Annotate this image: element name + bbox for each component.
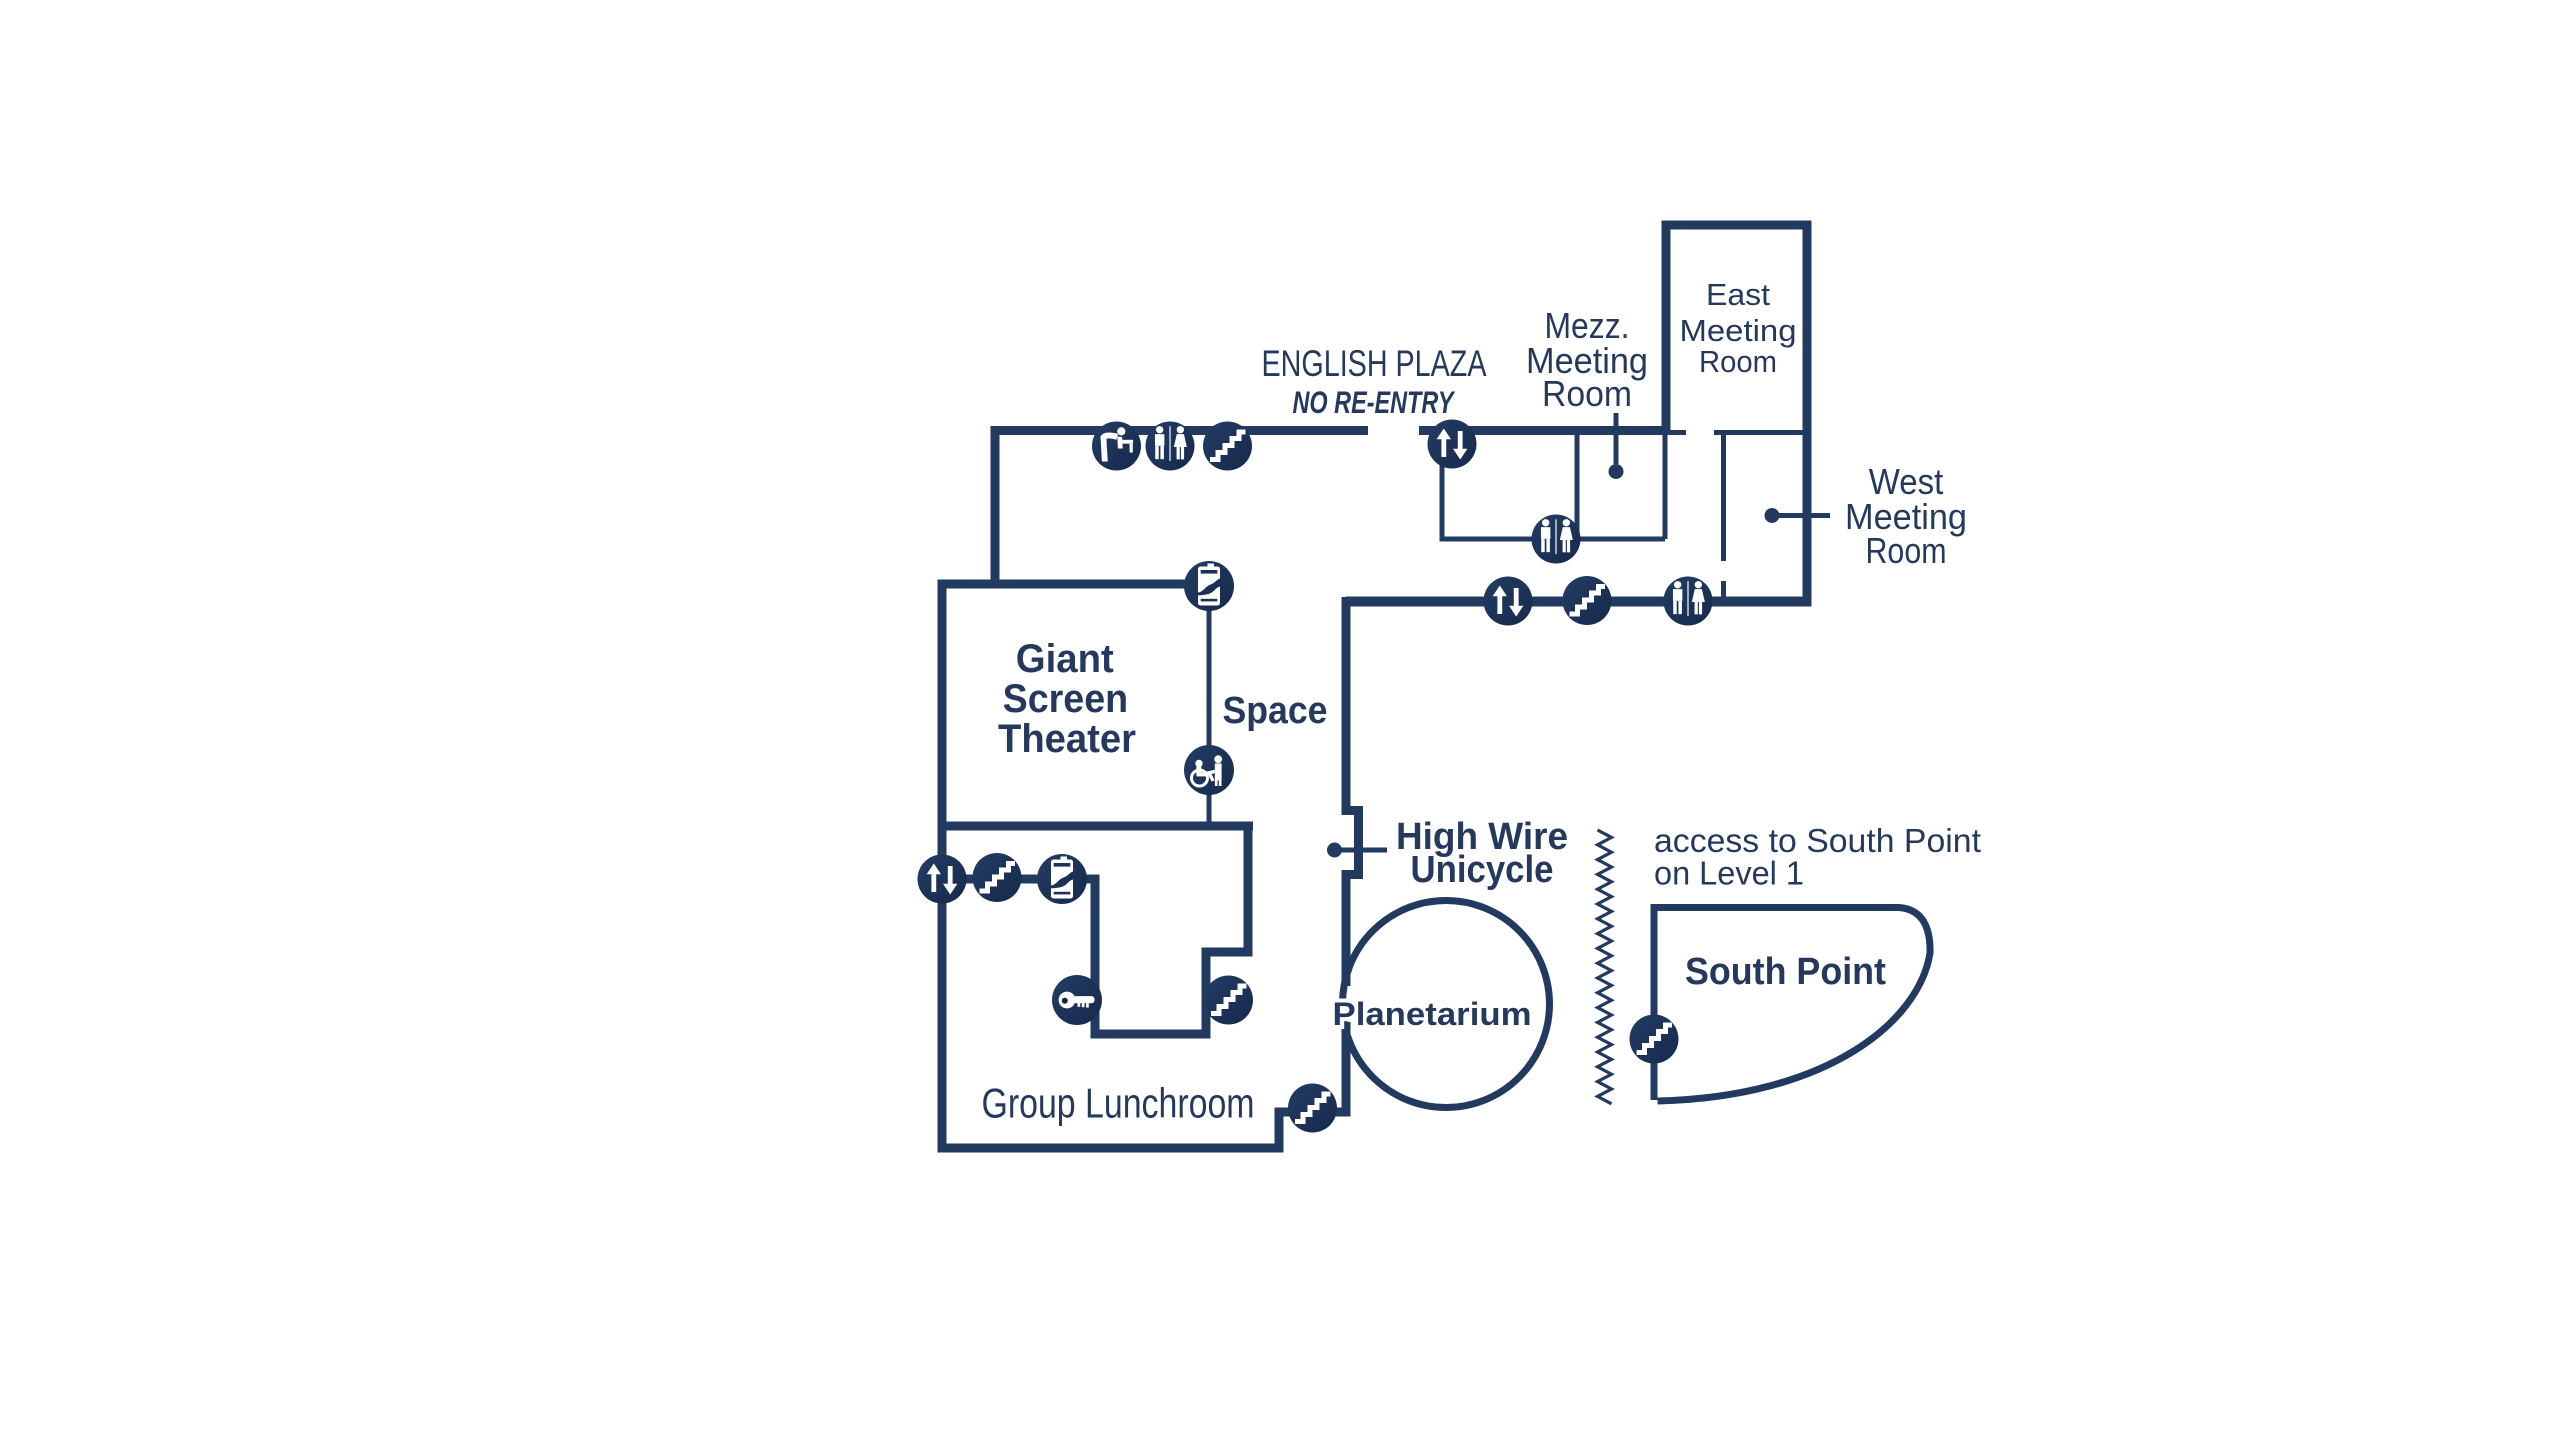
svg-text:Room: Room <box>1866 530 1947 571</box>
svg-text:ENGLISH PLAZA: ENGLISH PLAZA <box>1262 343 1487 384</box>
svg-text:Screen: Screen <box>1003 677 1129 721</box>
svg-text:on Level 1: on Level 1 <box>1654 855 1804 892</box>
svg-text:Room: Room <box>1699 344 1777 379</box>
svg-text:Space: Space <box>1223 690 1328 732</box>
svg-text:East: East <box>1706 277 1770 312</box>
svg-text:Room: Room <box>1542 373 1632 414</box>
svg-text:Unicycle: Unicycle <box>1411 849 1554 891</box>
svg-text:NO RE-ENTRY: NO RE-ENTRY <box>1293 384 1456 420</box>
svg-text:Theater: Theater <box>998 717 1136 761</box>
svg-text:Planetarium: Planetarium <box>1333 996 1532 1032</box>
svg-text:Group Lunchroom: Group Lunchroom <box>982 1080 1255 1127</box>
svg-text:South Point: South Point <box>1685 951 1886 993</box>
svg-text:Meeting: Meeting <box>1680 313 1797 348</box>
svg-text:Giant: Giant <box>1016 637 1114 681</box>
svg-text:access to South Point: access to South Point <box>1654 822 1981 859</box>
